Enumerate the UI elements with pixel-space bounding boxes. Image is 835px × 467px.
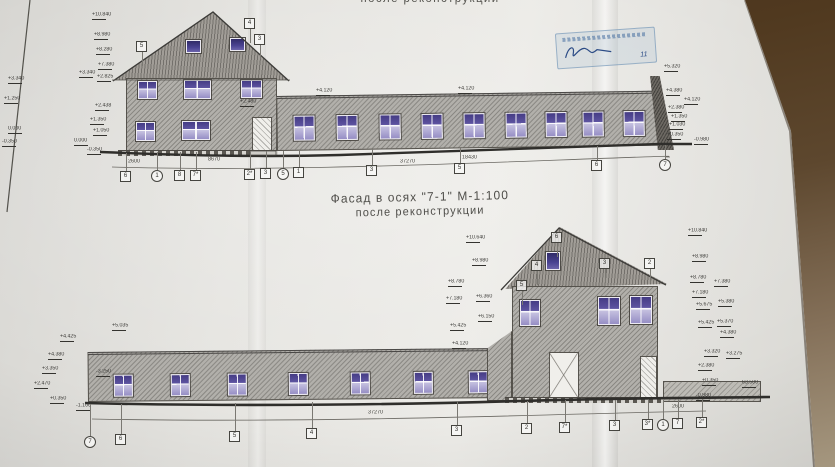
elevation-tick <box>694 144 708 145</box>
elevation-tick <box>94 39 108 40</box>
elevation-mark: +10.840 <box>92 12 114 20</box>
elevation-value: +0.350 <box>667 132 683 137</box>
elevation-tick <box>92 19 106 20</box>
elevation-mark: +2.470 <box>34 381 53 389</box>
elevation-mark: +6.150 <box>478 314 497 322</box>
axis-leader-line <box>527 401 528 423</box>
elevation-value: +5.035 <box>112 323 128 328</box>
elevation-tick <box>90 124 104 125</box>
signature-icon <box>558 37 629 64</box>
top-house-plinth <box>118 150 278 156</box>
axis-bubble: 4 <box>306 428 317 439</box>
elevation-tick <box>79 77 93 78</box>
elevation-value: +4.425 <box>60 334 76 339</box>
axis-leader-line <box>299 150 300 167</box>
window <box>136 122 155 141</box>
elevation-tick <box>2 146 16 147</box>
elevation-mark: -0.350 <box>2 139 19 147</box>
elevation-mark: +4.120 <box>452 341 471 349</box>
elevation-mark: +10.840 <box>688 228 710 236</box>
dimension-label: 8670 <box>208 157 220 162</box>
axis-bubble: 2 <box>644 258 655 269</box>
elevation-value: +5.320 <box>664 64 680 69</box>
axis-leader-line <box>605 269 606 283</box>
axis-bubble: 4 <box>531 260 542 271</box>
elevation-tick <box>714 286 728 287</box>
elevation-mark: +8.780 <box>448 279 467 287</box>
elevation-mark: +5.370 <box>717 319 736 327</box>
axis-bubble: 5 <box>229 431 240 442</box>
elevation-value: +1.350 <box>671 114 687 119</box>
axis-bubble: 3 <box>366 165 377 176</box>
axis-leader-line <box>142 52 143 66</box>
elevation-value: +2.480 <box>240 99 256 104</box>
elevation-value: +1.030 <box>669 122 685 127</box>
axis-leader-line <box>121 404 122 434</box>
axis-bubble: 6 <box>115 434 126 445</box>
window <box>230 38 245 51</box>
elevation-mark: +0.350 <box>50 396 69 404</box>
elevation-value: +1.250 <box>4 96 20 101</box>
elevation-value: +8.280 <box>96 47 112 52</box>
elevation-mark: +1.050 <box>93 128 112 136</box>
elevation-tick <box>42 373 56 374</box>
elevation-tick <box>696 309 710 310</box>
elevation-mark: +7.180 <box>446 296 465 304</box>
window <box>582 111 603 136</box>
elevation-mark: +3.275 <box>726 351 745 359</box>
elevation-tick <box>704 356 718 357</box>
axis-bubble: 3* <box>642 419 653 430</box>
elevation-value: 0.000 <box>8 126 21 131</box>
elevation-value: +7.380 <box>98 62 114 67</box>
axis-leader-line <box>597 146 598 160</box>
window <box>186 40 201 53</box>
axis-bubble: 4 <box>244 18 255 29</box>
window <box>469 371 488 393</box>
elevation-tick <box>50 403 64 404</box>
elevation-tick <box>692 297 706 298</box>
elevation-mark: +4.425 <box>60 334 79 342</box>
elevation-tick <box>742 387 756 388</box>
axis-leader-line <box>266 151 267 168</box>
elevation-tick <box>669 129 683 130</box>
window <box>351 372 370 394</box>
window <box>337 115 358 140</box>
elevation-tick <box>476 301 490 302</box>
elevation-value: +10.640 <box>466 235 485 240</box>
elevation-mark: 0.000 <box>74 138 89 146</box>
elevation-value: +10.840 <box>92 12 111 17</box>
window <box>623 111 644 136</box>
elevation-mark: -0.980 <box>694 137 711 145</box>
window <box>505 113 526 138</box>
axis-leader-line <box>678 399 679 418</box>
elevation-mark: +5.675 <box>696 302 715 310</box>
elevation-tick <box>698 327 712 328</box>
window <box>421 114 442 139</box>
elevation-mark: +0.350 <box>667 132 686 140</box>
window <box>289 373 308 395</box>
window <box>171 374 190 396</box>
elevation-value: +0.350 <box>702 378 718 383</box>
dimension-label: 2600 <box>128 159 140 164</box>
elevation-mark: +8.280 <box>96 47 115 55</box>
dimension-label: 37270 <box>368 410 383 415</box>
axis-leader-line <box>157 152 158 170</box>
elevation-tick <box>76 410 90 411</box>
elevation-value: +8.980 <box>94 32 110 37</box>
elevation-value: +3.320 <box>704 349 720 354</box>
window <box>598 297 620 325</box>
elevation-mark: +7.380 <box>98 62 117 70</box>
elevation-mark: +4.380 <box>48 352 67 360</box>
elevation-value: 0.000 <box>74 138 87 143</box>
axis-bubble: 5 <box>136 41 147 52</box>
window <box>630 296 652 324</box>
elevation-mark: +3.320 <box>704 349 723 357</box>
elevation-value: +7.180 <box>692 290 708 295</box>
elevation-value: +3.340 <box>8 76 24 81</box>
elevation-mark: +4.120 <box>458 86 477 94</box>
elevation-tick <box>48 359 62 360</box>
elevation-tick <box>466 242 480 243</box>
axis-leader-line <box>565 400 566 422</box>
elevation-tick <box>664 71 678 72</box>
axis-bubble: 3 <box>260 168 271 179</box>
elevation-tick <box>688 235 702 236</box>
elevation-value: +7.180 <box>446 296 462 301</box>
window <box>294 115 315 140</box>
elevation-mark: -3.250 <box>96 369 113 377</box>
elevation-tick <box>718 306 732 307</box>
elevation-tick <box>95 110 109 111</box>
axis-leader-line <box>648 400 649 419</box>
elevation-tick <box>696 400 710 401</box>
elevation-value: +5.675 <box>696 302 712 307</box>
elevation-tick <box>240 106 254 107</box>
axis-bubble: 7* <box>559 422 570 433</box>
elevation-tick <box>702 385 716 386</box>
window <box>545 112 566 137</box>
axis-leader-line <box>665 145 666 159</box>
drawing-title: Фасад в осях "7-1" М-1:100 после реконст… <box>306 188 535 222</box>
top-long-building-wall <box>276 91 659 151</box>
elevation-value: +0.350 <box>50 396 66 401</box>
axis-leader-line <box>522 291 523 305</box>
elevation-value: +8.980 <box>692 254 708 259</box>
elevation-value: +2.380 <box>698 363 714 368</box>
window <box>414 372 433 394</box>
elevation-tick <box>726 358 740 359</box>
window <box>520 300 540 326</box>
elevation-mark: +1.250 <box>4 96 23 104</box>
elevation-tick <box>96 376 110 377</box>
axis-leader-line <box>457 401 458 425</box>
elevation-mark: +5.380 <box>718 299 737 307</box>
elevation-tick <box>690 282 704 283</box>
dimension-label: 37270 <box>400 159 415 164</box>
elevation-value: +8.980 <box>472 258 488 263</box>
elevation-mark: +2.380 <box>668 105 687 113</box>
elevation-tick <box>478 321 492 322</box>
elevation-tick <box>96 54 110 55</box>
elevation-mark: +7.380 <box>714 279 733 287</box>
elevation-tick <box>316 95 330 96</box>
bottom-long-building-wall <box>88 348 508 402</box>
elevation-tick <box>87 154 101 155</box>
elevation-tick <box>448 286 462 287</box>
elevation-value: +4.120 <box>684 97 700 102</box>
drawing-sheet: после реконструкции Фасад в осях "7-1" М… <box>0 0 835 467</box>
elevation-mark: +2.380 <box>698 363 717 371</box>
window <box>114 375 133 397</box>
clipped-top-title: после реконструкции <box>288 0 573 5</box>
elevation-tick <box>666 95 680 96</box>
axis-leader-line <box>702 399 703 417</box>
elevation-mark: +0.350 <box>702 378 721 386</box>
axis-bubble: 5 <box>277 168 289 180</box>
elevation-tick <box>98 69 112 70</box>
elevation-tick <box>472 265 486 266</box>
axis-bubble: 2* <box>244 169 255 180</box>
elevation-value: -0.980 <box>694 137 709 142</box>
axis-bubble: 5 <box>516 280 527 291</box>
photo-of-architectural-drawing: после реконструкции Фасад в осях "7-1" М… <box>0 0 835 467</box>
axis-bubble: 6 <box>120 171 131 182</box>
elevation-mark: +6.360 <box>476 294 495 302</box>
elevation-tick <box>60 341 74 342</box>
axis-bubble: 3 <box>451 425 462 436</box>
axis-leader-line <box>460 148 461 163</box>
elevation-tick <box>74 145 88 146</box>
elevation-mark: -0.980 <box>696 393 713 401</box>
elevation-tick <box>692 261 706 262</box>
elevation-value: +3.275 <box>726 351 742 356</box>
elevation-mark: +10.640 <box>466 235 488 243</box>
elevation-mark: +5.425 <box>450 323 469 331</box>
axis-leader-line <box>180 152 181 170</box>
axis-bubble: 2* <box>696 417 707 428</box>
axis-bubble: 5 <box>454 163 465 174</box>
axis-leader-line <box>235 403 236 431</box>
elevation-tick <box>112 330 126 331</box>
elevation-mark: +4.380 <box>720 330 739 338</box>
elevation-value: +3.350 <box>42 366 58 371</box>
axis-leader-line <box>650 269 651 283</box>
elevation-tick <box>34 388 48 389</box>
axis-bubble: 8 <box>174 170 185 181</box>
axis-leader-line <box>372 149 373 165</box>
axis-bubble: 3 <box>254 34 265 45</box>
elevation-value: -1.100 <box>76 403 91 408</box>
axis-bubble: 1 <box>657 419 669 431</box>
elevation-mark: +5.425 <box>698 320 717 328</box>
elevation-value: +4.380 <box>48 352 64 357</box>
elevation-value: +4.120 <box>452 341 468 346</box>
elevation-mark: +1.350 <box>90 117 109 125</box>
elevation-mark: +8.980 <box>94 32 113 40</box>
bottom-house-plinth <box>505 397 663 403</box>
elevation-tick <box>8 83 22 84</box>
axis-bubble: 6 <box>551 232 562 243</box>
elevation-mark: +2.480 <box>240 99 259 107</box>
window <box>241 80 262 98</box>
bottom-house-gate <box>549 352 579 398</box>
elevation-value: +3.340 <box>79 70 95 75</box>
elevation-value: +4.380 <box>720 330 736 335</box>
elevation-value: +8.780 <box>448 279 464 284</box>
axis-leader-line <box>250 29 251 43</box>
stamp-date: 11 <box>640 51 648 58</box>
elevation-value: +7.380 <box>714 279 730 284</box>
axis-leader-line <box>283 151 284 168</box>
axis-bubble: 2 <box>521 423 532 434</box>
approval-stamp: 11 <box>555 27 657 70</box>
elevation-value: -3.250 <box>96 369 111 374</box>
elevation-tick <box>4 103 18 104</box>
window <box>138 81 157 99</box>
elevation-value: +5.380 <box>718 299 734 304</box>
elevation-value: +5.425 <box>450 323 466 328</box>
axis-leader-line <box>312 402 313 428</box>
axis-bubble: 7* <box>190 170 201 181</box>
elevation-value: +10.840 <box>688 228 707 233</box>
elevation-tick <box>698 370 712 371</box>
axis-bubble: 3 <box>599 258 610 269</box>
axis-bubble: 1 <box>151 170 163 182</box>
elevation-value: +2.380 <box>668 105 684 110</box>
window <box>463 113 484 138</box>
axis-leader-line <box>260 45 261 59</box>
elevation-mark: +7.180 <box>692 290 711 298</box>
axis-leader-line <box>90 404 91 436</box>
elevation-mark: +5.035 <box>112 323 131 331</box>
elevation-value: +6.360 <box>476 294 492 299</box>
elevation-value: 63.500 <box>742 380 758 385</box>
axis-bubble: 1 <box>293 167 304 178</box>
elevation-tick <box>667 139 681 140</box>
axis-leader-line <box>557 243 558 257</box>
window <box>228 373 247 395</box>
bottom-house-door <box>640 356 657 399</box>
elevation-value: +2.470 <box>34 381 50 386</box>
axis-bubble: 7 <box>672 418 683 429</box>
axis-leader-line <box>663 399 664 419</box>
elevation-mark: +8.980 <box>692 254 711 262</box>
elevation-value: +4.120 <box>458 86 474 91</box>
elevation-mark: +2.825 <box>97 74 116 82</box>
elevation-mark: +3.340 <box>8 76 27 84</box>
axis-leader-line <box>250 151 251 169</box>
elevation-value: +8.780 <box>690 275 706 280</box>
axis-leader-line <box>615 400 616 420</box>
axis-bubble: 7 <box>84 436 96 448</box>
elevation-mark: -0.350 <box>87 147 104 155</box>
window <box>182 121 210 140</box>
elevation-mark: +4.120 <box>316 88 335 96</box>
elevation-value: -0.350 <box>87 147 102 152</box>
elevation-value: +6.150 <box>478 314 494 319</box>
elevation-tick <box>450 330 464 331</box>
elevation-mark: +3.350 <box>42 366 61 374</box>
elevation-mark: +1.350 <box>671 114 690 122</box>
elevation-tick <box>717 326 731 327</box>
elevation-value: -0.980 <box>696 393 711 398</box>
elevation-value: +4.120 <box>316 88 332 93</box>
elevation-mark: +3.340 <box>79 70 98 78</box>
axis-leader-line <box>196 152 197 170</box>
elevation-tick <box>8 133 22 134</box>
elevation-tick <box>97 81 111 82</box>
axis-bubble: 6 <box>591 160 602 171</box>
elevation-mark: +5.320 <box>664 64 683 72</box>
elevation-value: +5.370 <box>717 319 733 324</box>
elevation-value: +1.050 <box>93 128 109 133</box>
axis-bubble: 3 <box>609 420 620 431</box>
axis-bubble: 7 <box>659 159 671 171</box>
elevation-mark: +4.380 <box>666 88 685 96</box>
elevation-mark: +4.120 <box>684 97 703 105</box>
elevation-value: +2.825 <box>97 74 113 79</box>
elevation-value: +1.350 <box>90 117 106 122</box>
elevation-mark: +2.438 <box>95 103 114 111</box>
elevation-tick <box>668 112 682 113</box>
elevation-value: +4.380 <box>666 88 682 93</box>
elevation-value: +2.438 <box>95 103 111 108</box>
elevation-mark: +1.030 <box>669 122 688 130</box>
elevation-mark: 0.000 <box>8 126 23 134</box>
window <box>184 80 211 99</box>
axis-leader-line <box>537 271 538 285</box>
elevation-mark: 63.500 <box>742 380 760 388</box>
elevation-value: +5.425 <box>698 320 714 325</box>
elevation-tick <box>452 348 466 349</box>
elevation-tick <box>720 337 734 338</box>
elevation-mark: +8.980 <box>472 258 491 266</box>
elevation-tick <box>458 93 472 94</box>
elevation-tick <box>446 303 460 304</box>
window <box>380 114 401 139</box>
elevation-mark: +8.780 <box>690 275 709 283</box>
elevation-value: -0.350 <box>2 139 17 144</box>
axis-leader-line <box>126 153 127 171</box>
elevation-tick <box>93 135 107 136</box>
top-house-door <box>252 117 272 151</box>
dimension-label: 18430 <box>462 155 477 160</box>
